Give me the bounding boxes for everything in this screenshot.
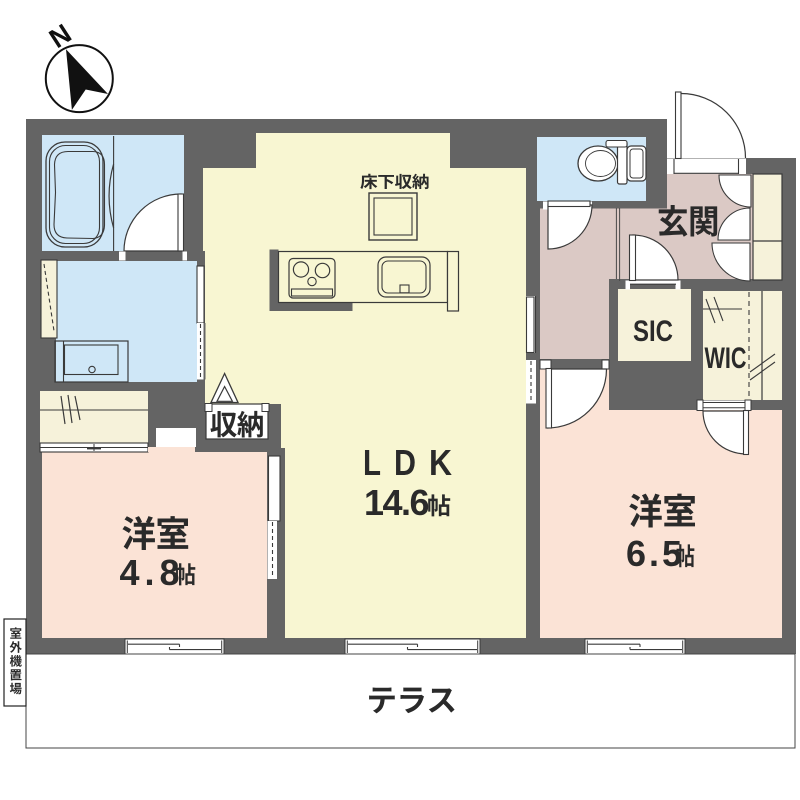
svg-text:6.5: 6.5 xyxy=(626,533,685,574)
svg-text:14.6: 14.6 xyxy=(364,482,429,523)
svg-text:WIC: WIC xyxy=(705,342,747,375)
svg-text:D: D xyxy=(394,442,416,483)
svg-text:N: N xyxy=(44,18,77,54)
svg-text:K: K xyxy=(429,442,453,483)
svg-text:L: L xyxy=(363,442,381,483)
svg-text:4.8: 4.8 xyxy=(120,552,185,593)
svg-text:SIC: SIC xyxy=(633,315,673,348)
